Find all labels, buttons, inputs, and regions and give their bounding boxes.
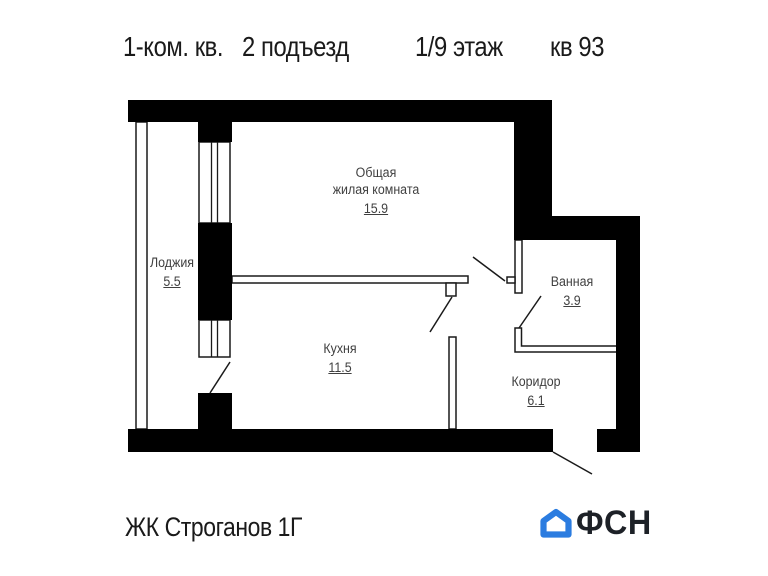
loggia-outer-wall — [136, 122, 147, 429]
kitchen-corridor-wall — [449, 337, 456, 429]
room-name: Ванная — [551, 273, 594, 290]
room-area: 11.5 — [328, 359, 351, 376]
top-wall — [128, 100, 552, 122]
room-name: Кухня — [323, 340, 356, 357]
developer-logo: ФСН — [540, 507, 656, 539]
house-icon — [540, 507, 572, 539]
living-room-door — [473, 257, 505, 281]
room-area: 3.9 — [563, 292, 580, 309]
kitchen-living-partition — [232, 276, 468, 283]
complex-name: ЖК Строганов 1Г — [125, 512, 302, 543]
living-door-jamb — [507, 277, 515, 283]
kitchen-door-jamb — [446, 283, 456, 296]
room-area: 6.1 — [527, 392, 544, 409]
kitchen-door — [430, 297, 452, 332]
step-vertical-wall — [514, 122, 552, 240]
room-name: Лоджия — [150, 254, 194, 271]
window-living — [199, 142, 230, 223]
floor-plan — [0, 0, 768, 576]
room-area: 15.9 — [364, 200, 388, 217]
room-label-kitchen: Кухня 11.5 — [323, 340, 356, 376]
balcony-door — [210, 362, 230, 393]
bottom-wall — [128, 429, 553, 452]
bathroom-lower-wall — [515, 328, 617, 352]
entrance-door — [553, 452, 592, 474]
step-horizontal-wall — [552, 216, 640, 240]
bottom-right-corner — [597, 429, 640, 452]
room-name-line2: жилая комната — [333, 181, 420, 198]
window-kitchen — [199, 320, 230, 357]
room-label-bathroom: Ванная 3.9 — [551, 273, 594, 309]
bathroom-door — [519, 296, 541, 328]
pier-top — [198, 122, 232, 142]
room-area: 5.5 — [163, 273, 180, 290]
pier-bottom — [198, 393, 232, 429]
right-wall — [616, 240, 640, 452]
room-label-living: Общая жилая комната 15.9 — [333, 164, 420, 217]
room-name: Коридор — [511, 373, 560, 390]
room-name: Общая — [333, 164, 420, 181]
pier-middle — [198, 223, 232, 320]
living-bathroom-wall — [515, 240, 522, 293]
room-label-corridor: Коридор 6.1 — [511, 373, 560, 409]
room-label-loggia: Лоджия 5.5 — [150, 254, 194, 290]
brand-name: ФСН — [576, 507, 652, 539]
